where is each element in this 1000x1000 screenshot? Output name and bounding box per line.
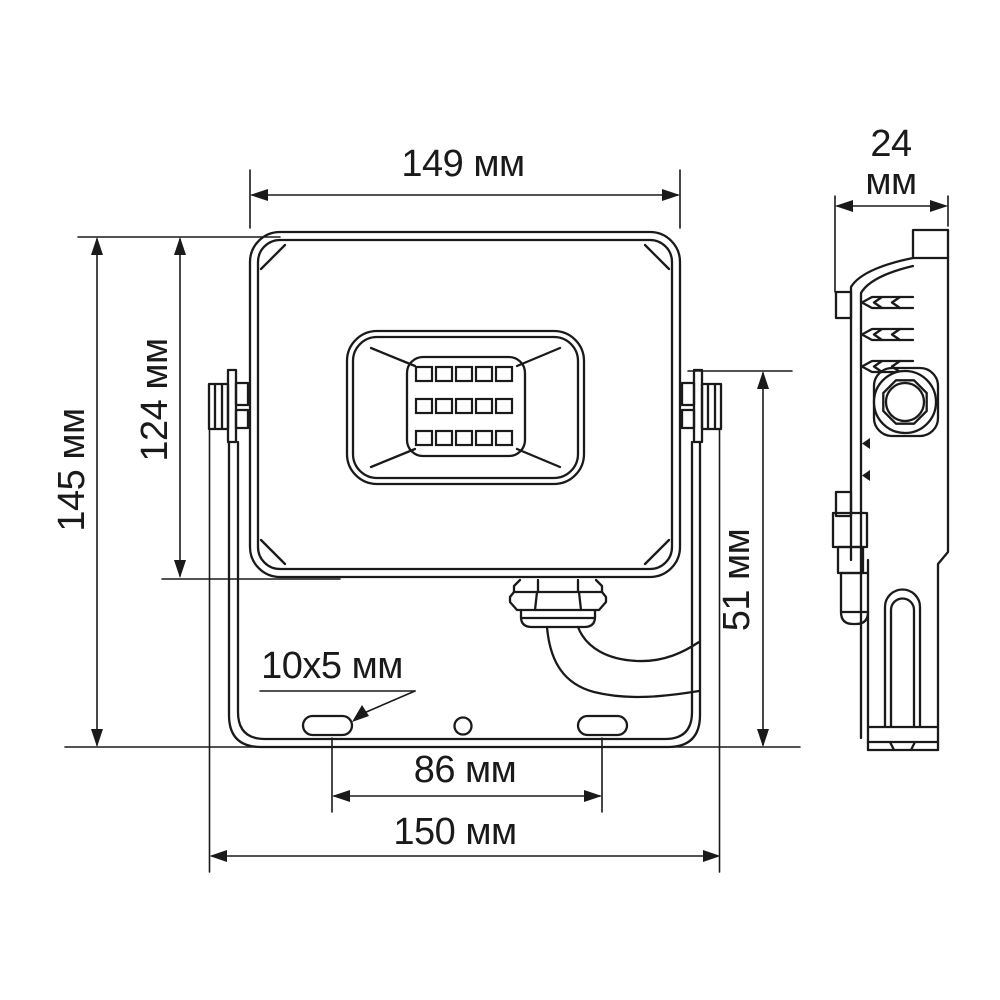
arrowhead-top	[757, 371, 769, 389]
side-gland-block-3	[841, 573, 868, 624]
leader-arrowhead	[352, 705, 369, 722]
bar-slot-inner	[891, 599, 914, 728]
floodlight-dimension-drawing: 149 мм 24 мм 145 мм 124 мм	[0, 0, 1000, 1000]
dimensions: 149 мм 24 мм 145 мм 124 мм	[51, 123, 948, 872]
led-chip	[476, 431, 492, 445]
fin-2	[862, 329, 913, 340]
led-chip	[456, 431, 472, 445]
dim-overall-height-145: 145 мм	[51, 237, 280, 747]
drawing-canvas: 149 мм 24 мм 145 мм 124 мм	[0, 0, 1000, 1000]
bar-bottom-and-bands	[868, 727, 938, 750]
side-bolt-knob	[874, 368, 938, 436]
body-outline-inner	[258, 240, 672, 569]
led-chip	[436, 367, 452, 381]
hex-bolt-facets	[708, 384, 715, 429]
arrowhead-top	[91, 237, 103, 255]
washer-plate	[228, 370, 236, 442]
bracket-outline-outer	[229, 442, 700, 747]
led-chip	[476, 367, 492, 381]
led-chip	[496, 399, 512, 413]
mounting-slot-left	[303, 716, 352, 735]
dim-149-label: 149 мм	[401, 143, 524, 185]
arrowhead-left	[332, 790, 350, 802]
arrowhead-bottom	[174, 560, 186, 578]
bracket-outline-inner	[238, 442, 692, 739]
led-chip	[436, 399, 452, 413]
hex-bolt-facets	[215, 384, 222, 429]
fin-tip-5	[862, 470, 870, 481]
reflector	[347, 331, 584, 484]
washer-plate	[694, 370, 702, 442]
led-chip	[436, 431, 452, 445]
fin-1	[862, 297, 913, 308]
body-corner-chamfers	[261, 245, 669, 564]
arrowhead-top	[174, 237, 186, 255]
center-hole	[455, 718, 472, 735]
led-chip	[416, 431, 432, 445]
cable-edge-top	[578, 627, 699, 661]
dim-front-width-149: 149 мм	[250, 143, 680, 228]
arrowhead-left	[210, 850, 228, 862]
arrowhead-bottom	[757, 729, 769, 747]
power-cable	[547, 627, 699, 697]
clamp-tab-upper	[236, 383, 248, 405]
slot-size-label: 10x5 мм	[261, 645, 403, 687]
side-bracket-tab-upper	[836, 292, 851, 318]
fin-tip-4	[862, 438, 870, 449]
clamp-tab-lower	[682, 410, 694, 428]
dim-145-label: 145 мм	[51, 408, 93, 531]
side-front-face	[938, 230, 948, 750]
gland-nut-facets-1	[538, 580, 578, 592]
arrowhead-left	[835, 200, 853, 212]
cable-edge-bottom	[547, 627, 699, 697]
dim-124-label: 124 мм	[134, 338, 176, 461]
dim-depth-24: 24 мм	[835, 123, 948, 292]
led-chip	[416, 367, 432, 381]
led-chip	[456, 399, 472, 413]
dim-24-unit: мм	[865, 161, 916, 203]
knob-hex-facets	[883, 380, 926, 423]
side-bracket-bar	[868, 560, 938, 750]
body-outline-outer	[250, 232, 680, 577]
led-chip	[416, 399, 432, 413]
gland-nut-facets-2	[535, 592, 581, 610]
hex-bolt-head	[702, 384, 721, 429]
hex-bolt-head	[209, 384, 228, 429]
arrowhead-right	[584, 790, 602, 802]
dim-51-label: 51 мм	[716, 529, 758, 632]
dim-24-value: 24	[870, 123, 912, 165]
clamp-tab-lower	[236, 410, 248, 428]
arrowhead-right	[703, 850, 721, 862]
arrowhead-left	[250, 189, 268, 201]
led-chip	[456, 367, 472, 381]
reflector-cone-lines	[371, 348, 560, 467]
mounting-slot-right	[578, 716, 627, 735]
gland-nut-band-2	[510, 592, 606, 610]
led-chip	[476, 399, 492, 413]
gland-nut-band-1	[514, 580, 602, 592]
dim-bracket-height-51: 51 мм	[688, 371, 792, 747]
mounting-bracket	[229, 442, 700, 747]
led-chip	[496, 431, 512, 445]
arrowhead-right	[662, 189, 680, 201]
led-chip	[496, 367, 512, 381]
arrowhead-right	[930, 200, 948, 212]
dim-86-label: 86 мм	[414, 749, 517, 791]
led-plate	[407, 357, 525, 456]
left-mount-bolt	[209, 370, 248, 442]
cable-gland	[510, 580, 606, 627]
side-top-tab	[913, 230, 948, 258]
callout-slot-size: 10x5 мм	[260, 645, 415, 722]
right-mount-bolt	[682, 370, 721, 442]
dim-150-label: 150 мм	[393, 811, 516, 853]
clamp-tab-upper	[682, 383, 694, 405]
led-array	[416, 367, 512, 445]
floodlight-body	[250, 232, 680, 577]
arrowhead-bottom	[91, 729, 103, 747]
side-view	[833, 230, 948, 750]
dim-slot-spacing-86: 86 мм	[332, 738, 602, 812]
